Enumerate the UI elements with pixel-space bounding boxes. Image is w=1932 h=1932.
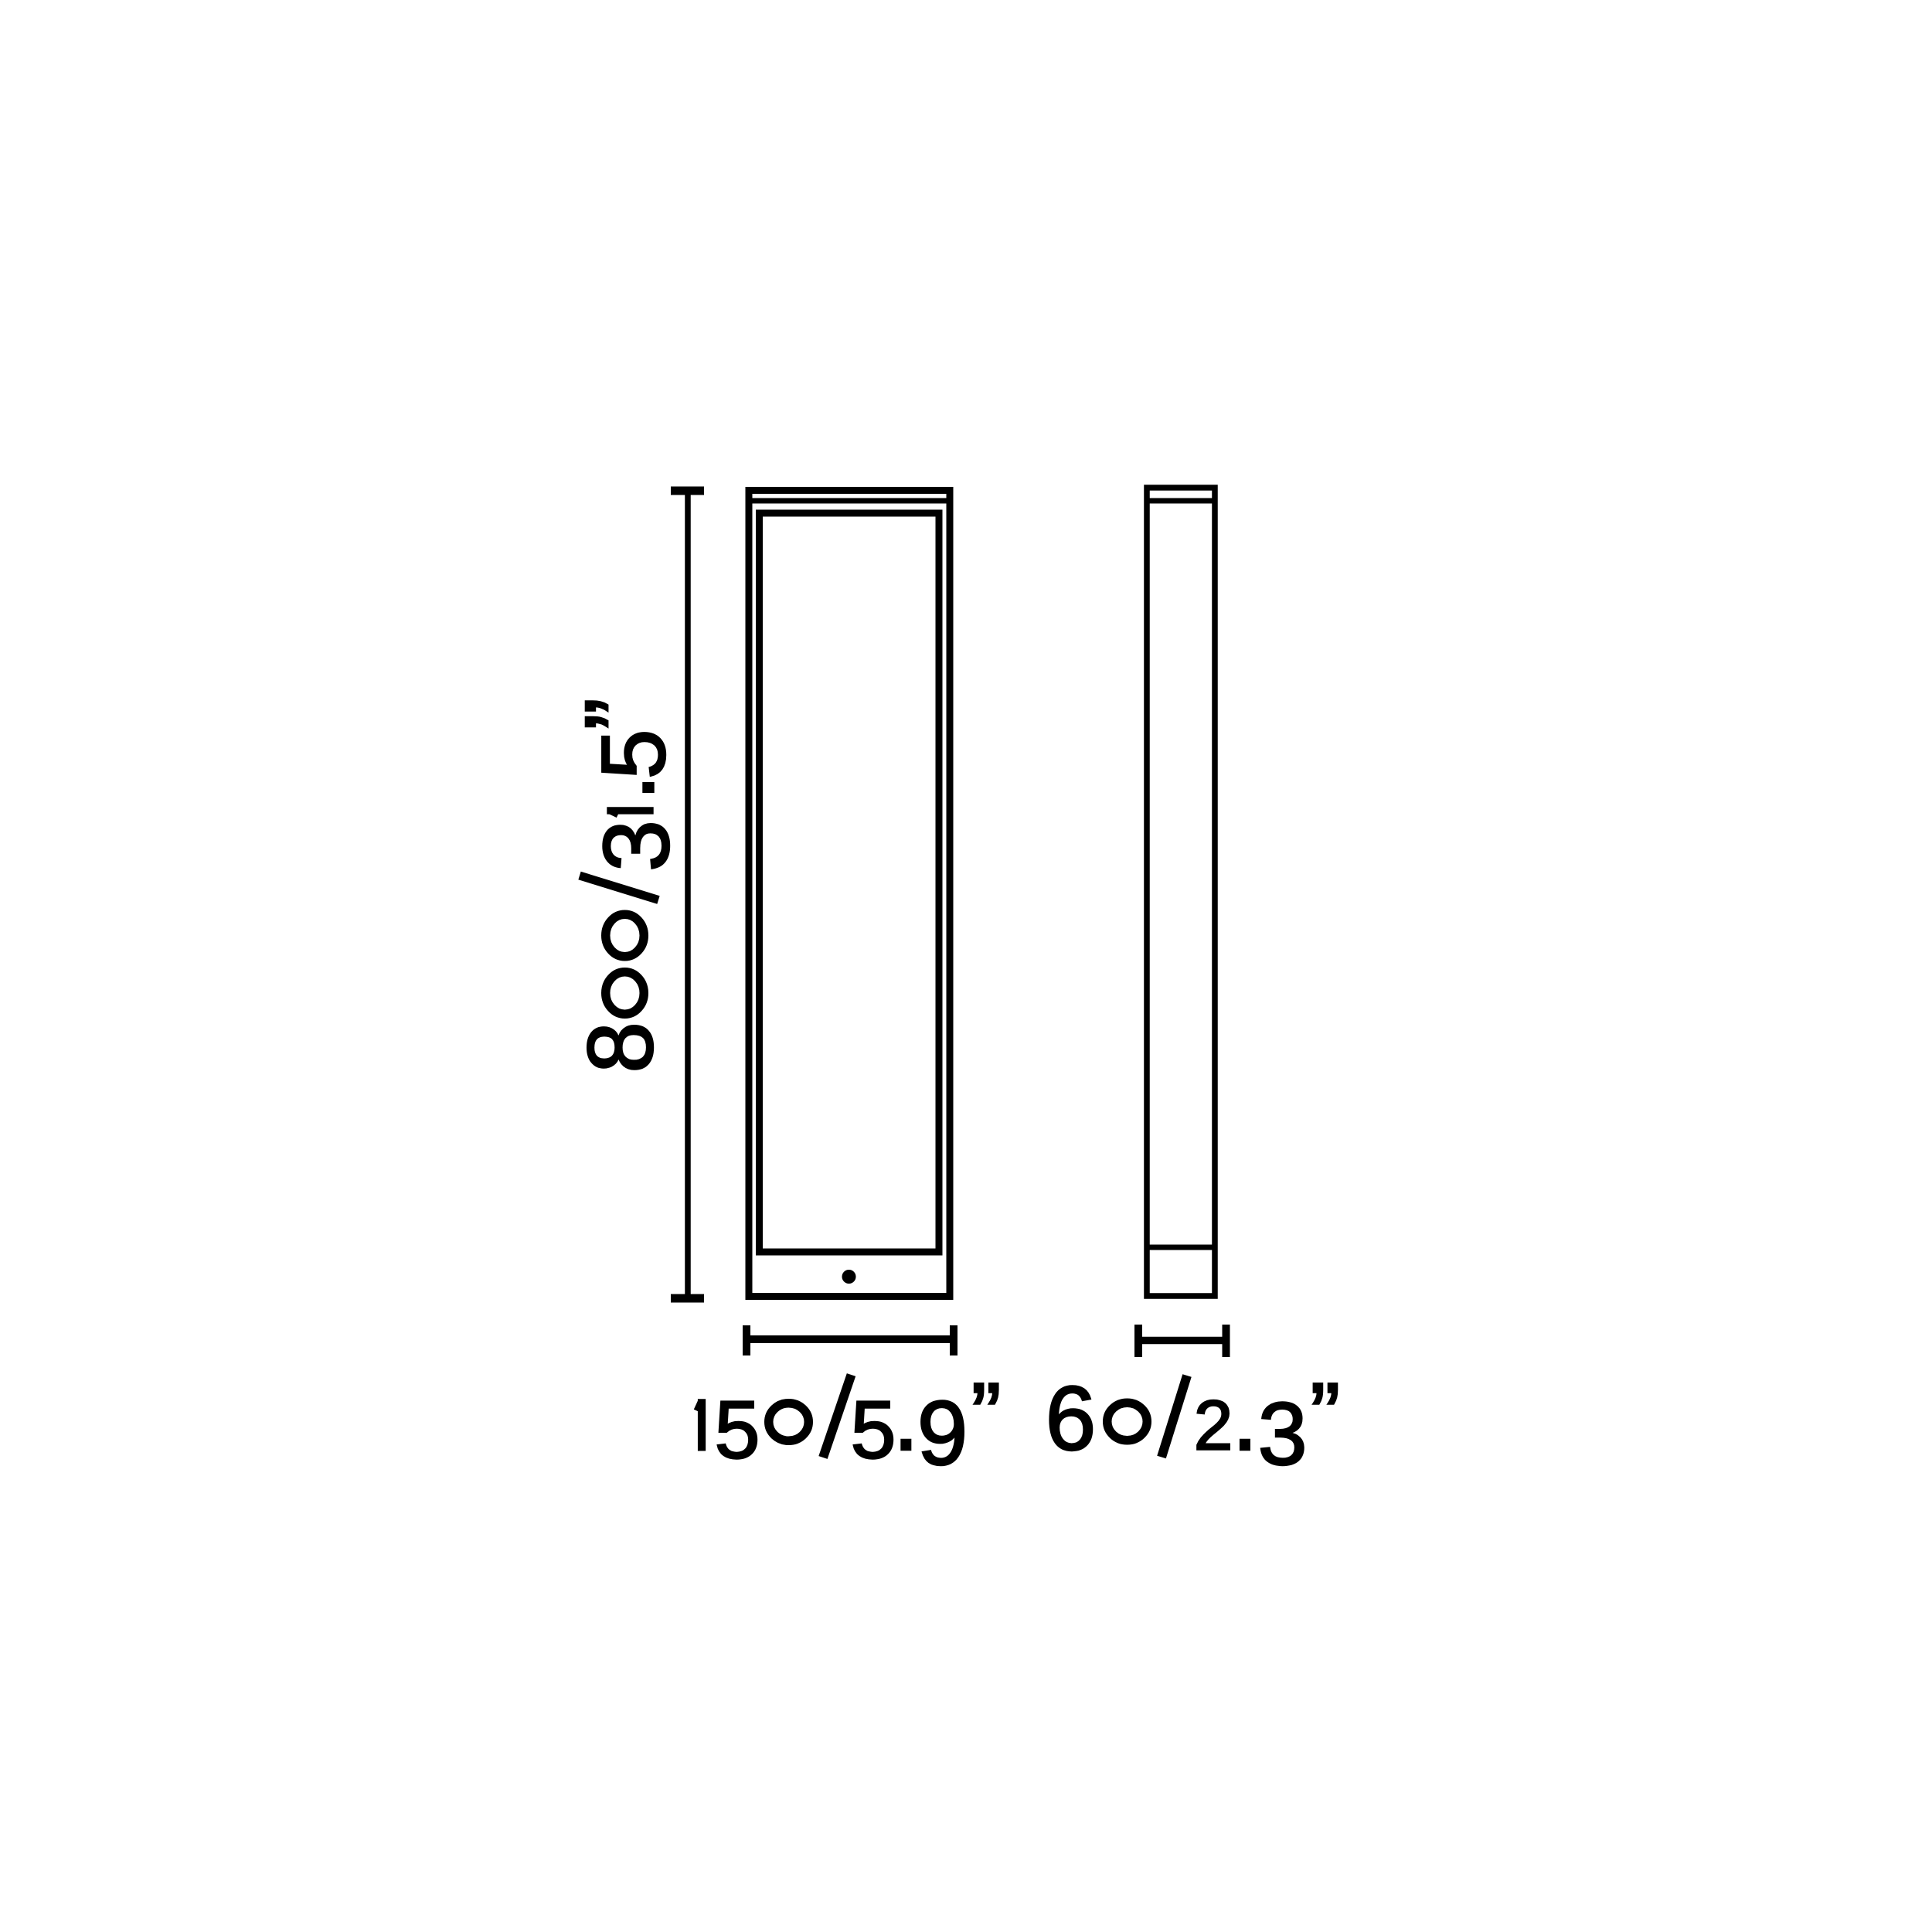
svg-text:5: 5 bbox=[851, 1385, 896, 1476]
svg-text:.: . bbox=[893, 1365, 919, 1470]
svg-text:5: 5 bbox=[583, 729, 684, 779]
svg-text:l: l bbox=[694, 1387, 709, 1464]
svg-text:9: 9 bbox=[917, 1383, 968, 1485]
svg-text:5: 5 bbox=[715, 1385, 760, 1476]
svg-text:.: . bbox=[1232, 1365, 1258, 1470]
svg-text:2: 2 bbox=[1194, 1386, 1233, 1464]
svg-text:”: ” bbox=[971, 1365, 1001, 1467]
svg-text:8: 8 bbox=[569, 1022, 672, 1073]
svg-text:3: 3 bbox=[583, 820, 689, 872]
svg-text:3: 3 bbox=[1258, 1385, 1308, 1484]
svg-text:l: l bbox=[597, 804, 666, 818]
svg-text:”: ” bbox=[564, 698, 674, 730]
svg-text:”: ” bbox=[1310, 1365, 1340, 1467]
svg-text:6: 6 bbox=[1046, 1368, 1097, 1470]
